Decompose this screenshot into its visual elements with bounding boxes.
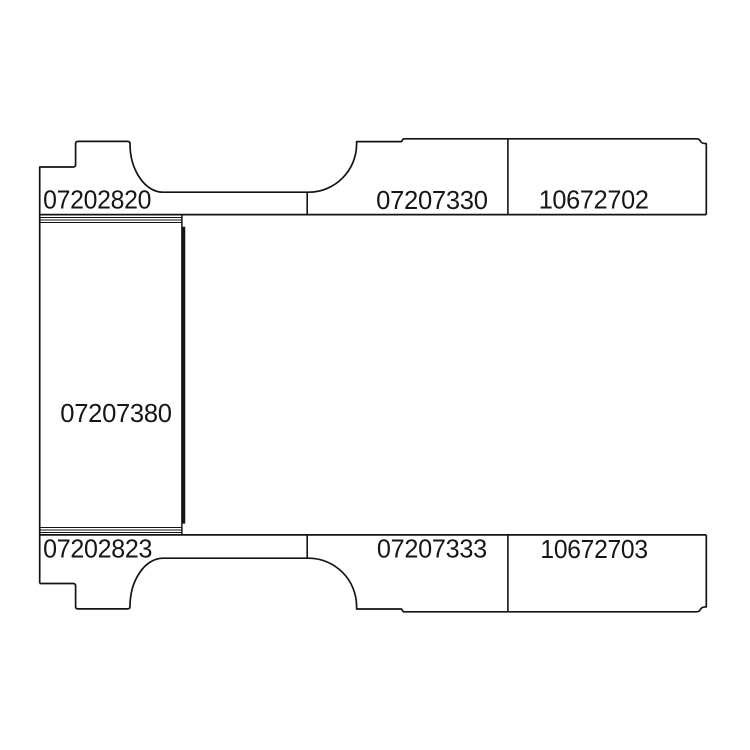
svg-text:07202823: 07202823 (43, 535, 152, 563)
svg-text:07207330: 07207330 (376, 187, 488, 215)
svg-text:07207380: 07207380 (60, 400, 172, 428)
svg-text:10672702: 10672702 (539, 186, 649, 214)
svg-text:10672703: 10672703 (540, 536, 648, 564)
svg-text:07202820: 07202820 (43, 187, 151, 215)
svg-text:07207333: 07207333 (377, 535, 487, 563)
